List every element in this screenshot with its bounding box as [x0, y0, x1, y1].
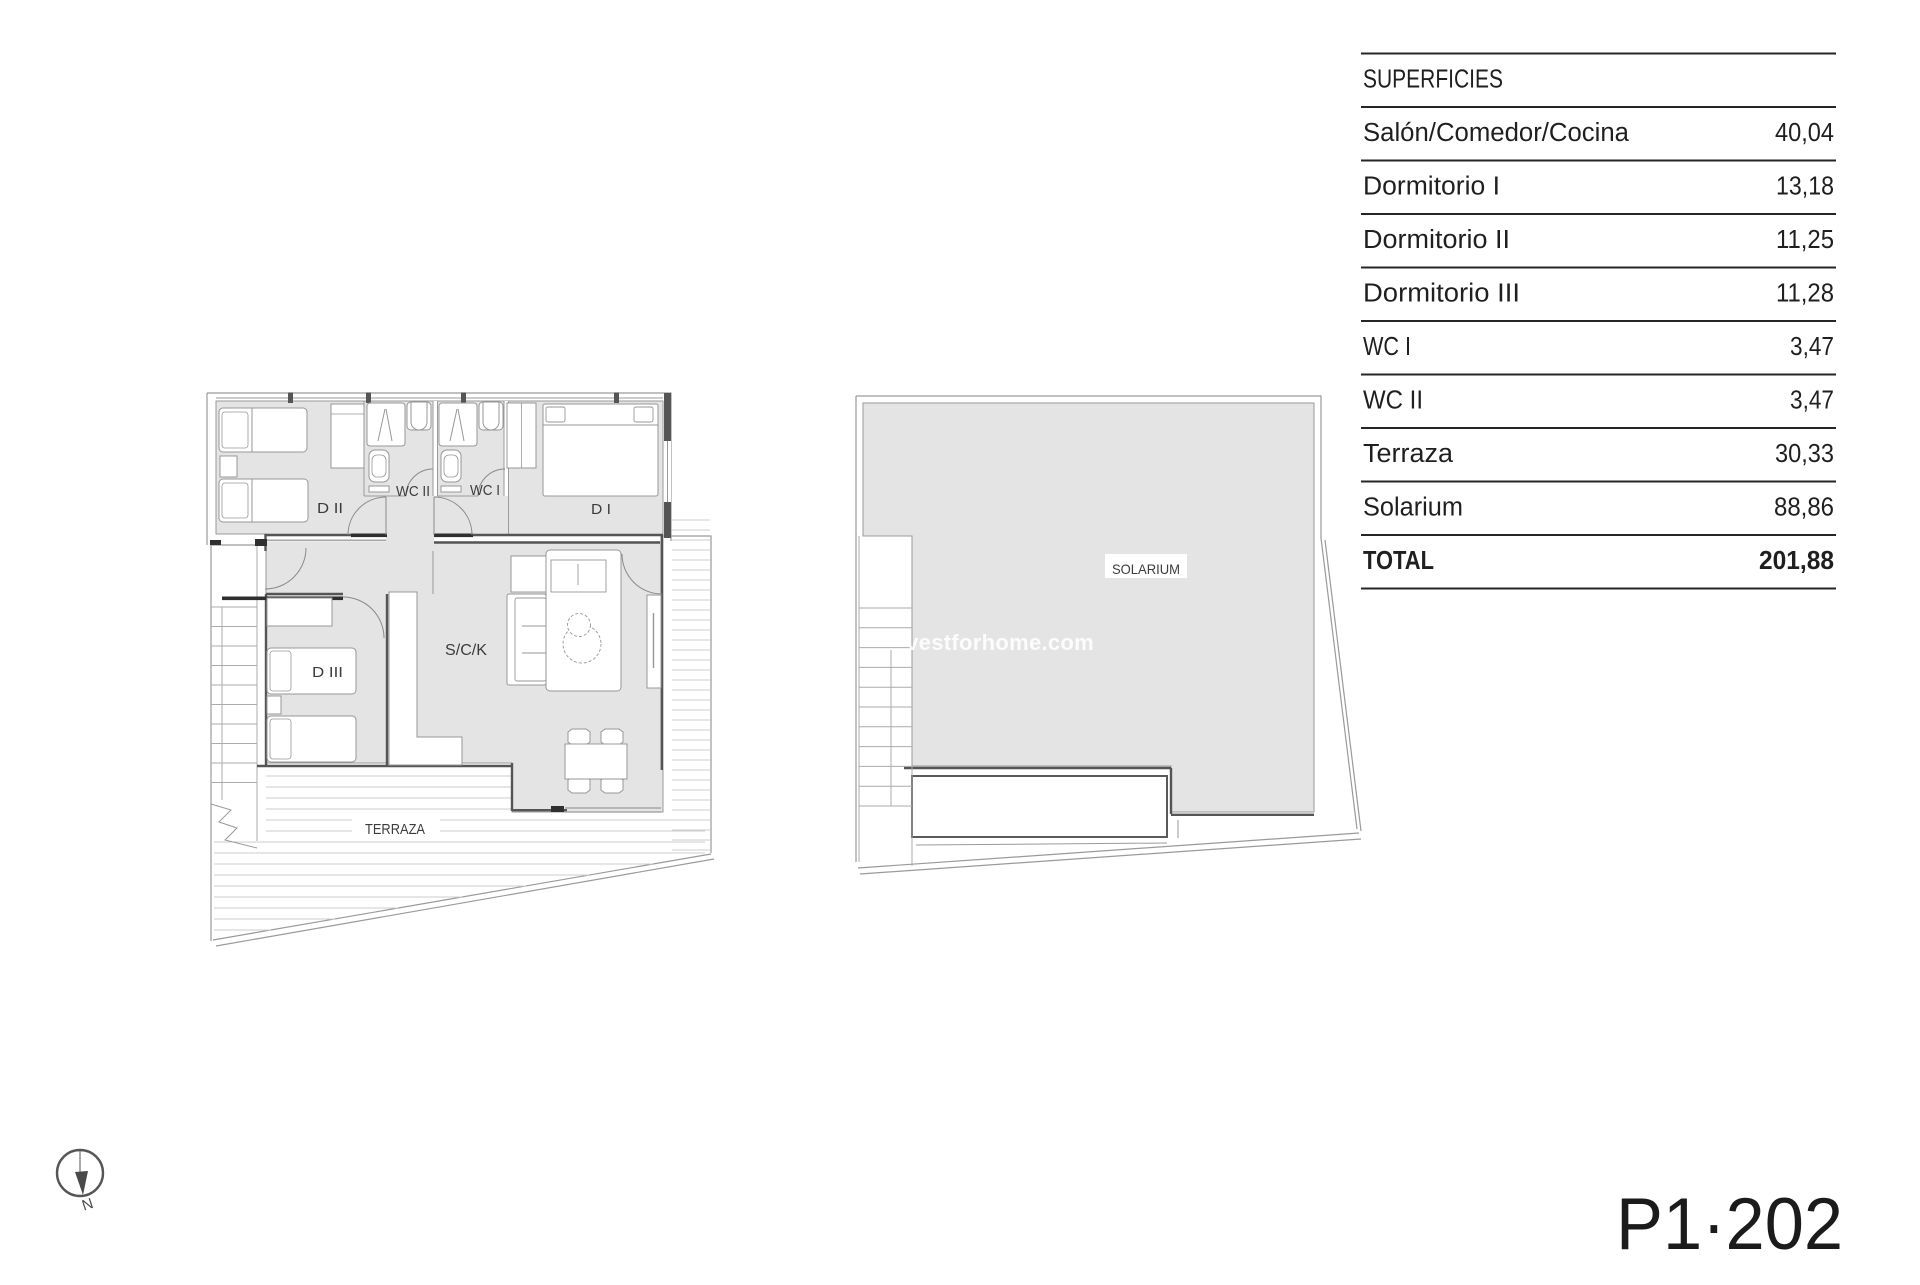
svg-text:30,33: 30,33: [1775, 440, 1834, 468]
svg-text:11,28: 11,28: [1776, 280, 1834, 308]
svg-text:Dormitorio III: Dormitorio III: [1363, 280, 1520, 308]
svg-text:Salón/Comedor/Cocina: Salón/Comedor/Cocina: [1363, 119, 1630, 147]
svg-text:SOLARIUM: SOLARIUM: [1112, 561, 1180, 577]
svg-text:TERRAZA: TERRAZA: [365, 822, 425, 838]
svg-text:Dormitorio II: Dormitorio II: [1363, 226, 1510, 254]
svg-text:WC II: WC II: [1363, 387, 1423, 415]
svg-text:D II: D II: [317, 500, 343, 517]
svg-text:WC I: WC I: [1363, 333, 1411, 361]
svg-text:Dormitorio I: Dormitorio I: [1363, 173, 1500, 201]
svg-text:3,47: 3,47: [1790, 387, 1834, 415]
svg-text:13,18: 13,18: [1776, 173, 1834, 201]
svg-text:WC I: WC I: [470, 482, 500, 499]
svg-text:SUPERFICIES: SUPERFICIES: [1363, 66, 1503, 94]
svg-text:D III: D III: [312, 664, 343, 681]
svg-text:40,04: 40,04: [1775, 119, 1834, 147]
svg-text:P1·202: P1·202: [1616, 1184, 1843, 1265]
svg-text:Terraza: Terraza: [1363, 440, 1454, 468]
svg-text:Solarium: Solarium: [1363, 494, 1463, 522]
svg-text:3,47: 3,47: [1790, 333, 1834, 361]
svg-text:88,86: 88,86: [1774, 494, 1834, 522]
svg-text:WC II: WC II: [396, 483, 430, 500]
svg-text:investforhome.com: investforhome.com: [886, 630, 1094, 655]
svg-text:S/C/K: S/C/K: [445, 642, 487, 659]
svg-text:201,88: 201,88: [1759, 547, 1834, 575]
svg-text:D I: D I: [591, 501, 611, 518]
svg-text:11,25: 11,25: [1776, 226, 1834, 254]
svg-text:TOTAL: TOTAL: [1363, 547, 1434, 575]
